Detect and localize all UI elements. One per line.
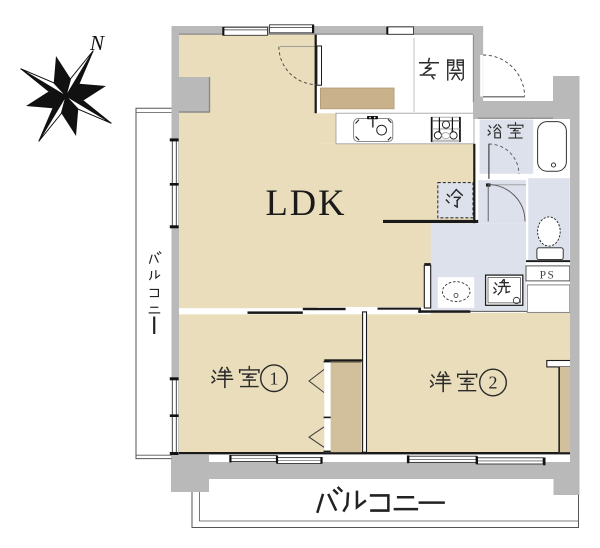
svg-text:PS: PS [540, 269, 556, 281]
svg-text:2: 2 [489, 373, 498, 393]
svg-text:LDK: LDK [265, 182, 346, 223]
svg-text:N: N [89, 31, 105, 55]
svg-text:1: 1 [270, 368, 279, 388]
